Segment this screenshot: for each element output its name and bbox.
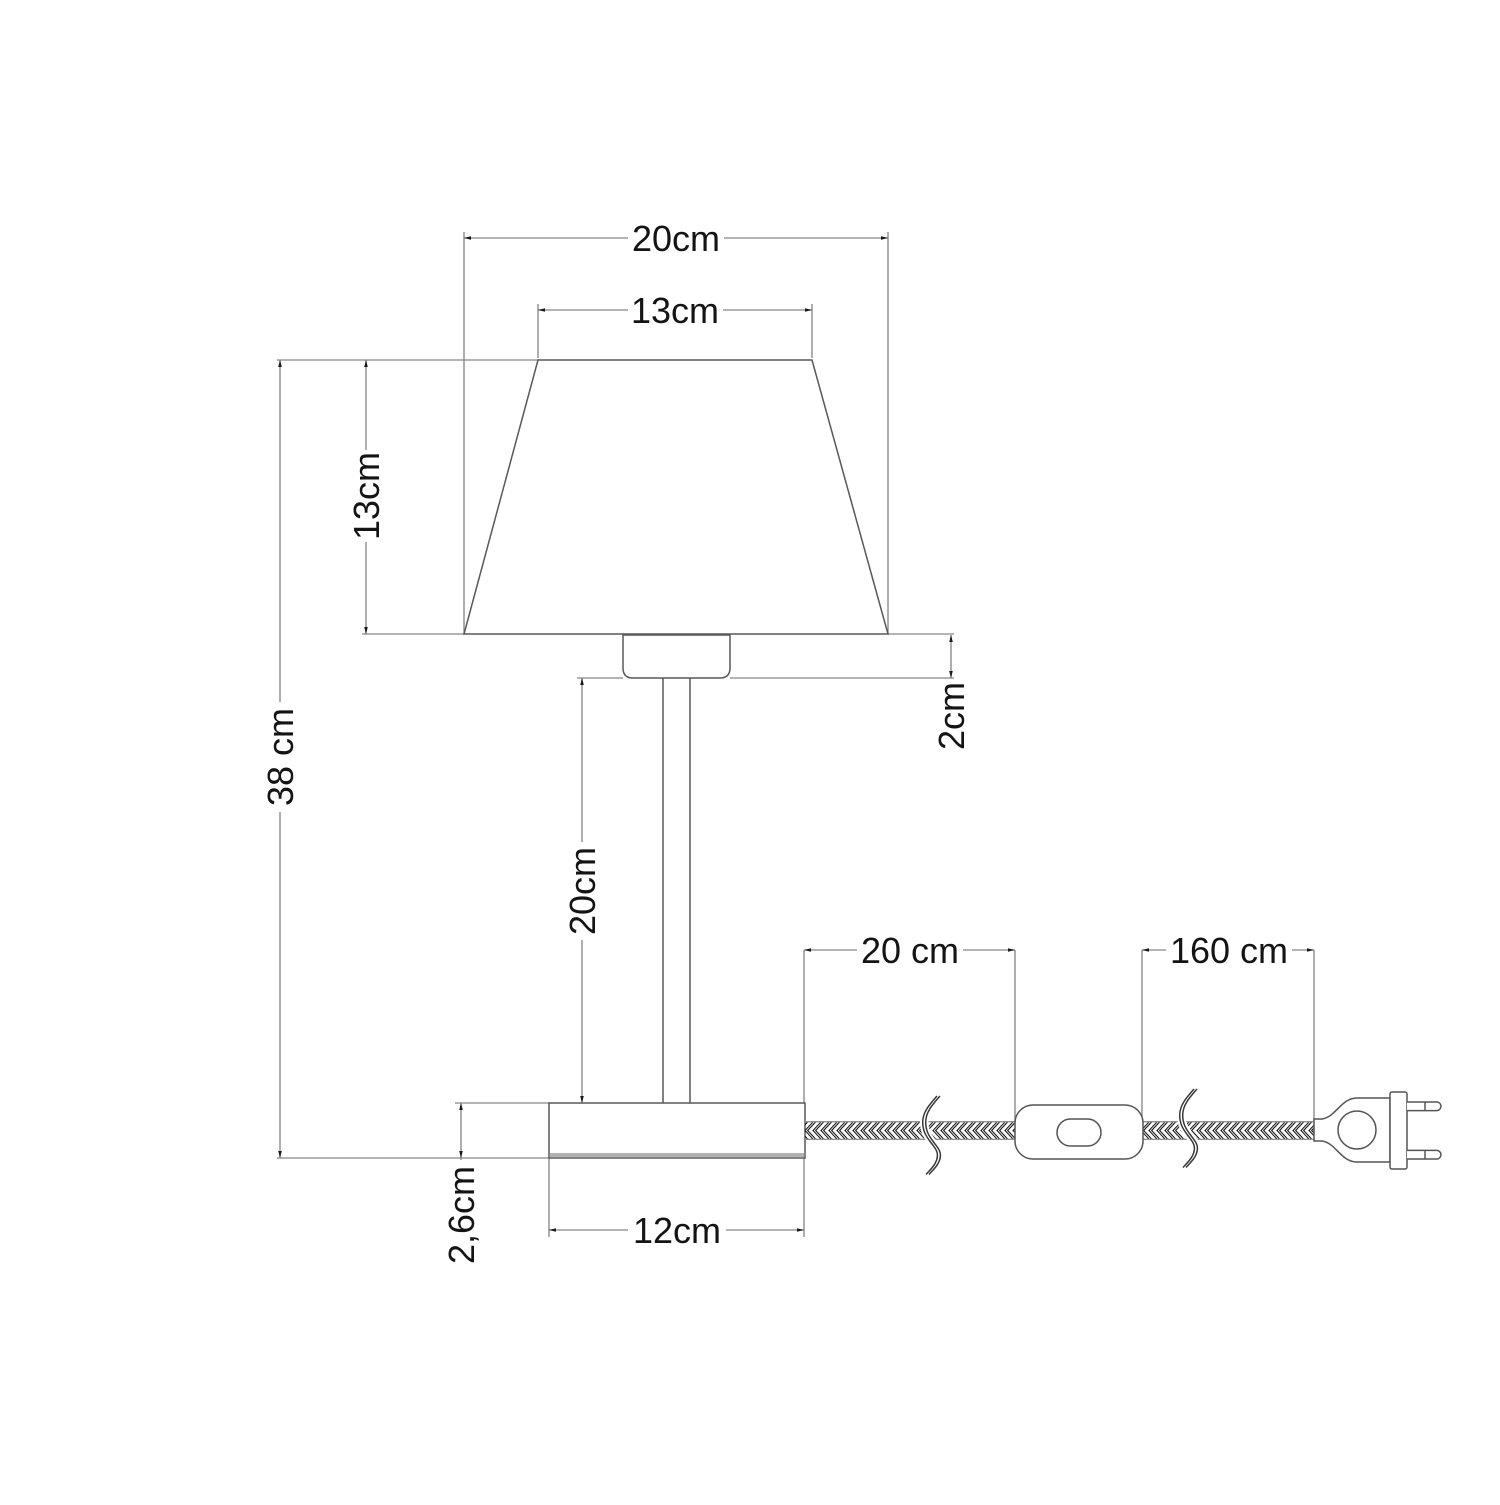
svg-text:160 cm: 160 cm <box>1170 930 1288 971</box>
svg-text:12cm: 12cm <box>633 1210 721 1251</box>
svg-text:2cm: 2cm <box>931 682 972 750</box>
svg-text:13cm: 13cm <box>631 290 719 331</box>
svg-text:13cm: 13cm <box>346 452 387 540</box>
svg-text:20cm: 20cm <box>632 218 720 259</box>
svg-text:20cm: 20cm <box>562 847 603 935</box>
svg-text:2,6cm: 2,6cm <box>441 1166 482 1264</box>
svg-text:38 cm: 38 cm <box>260 708 301 806</box>
svg-text:20 cm: 20 cm <box>861 930 959 971</box>
